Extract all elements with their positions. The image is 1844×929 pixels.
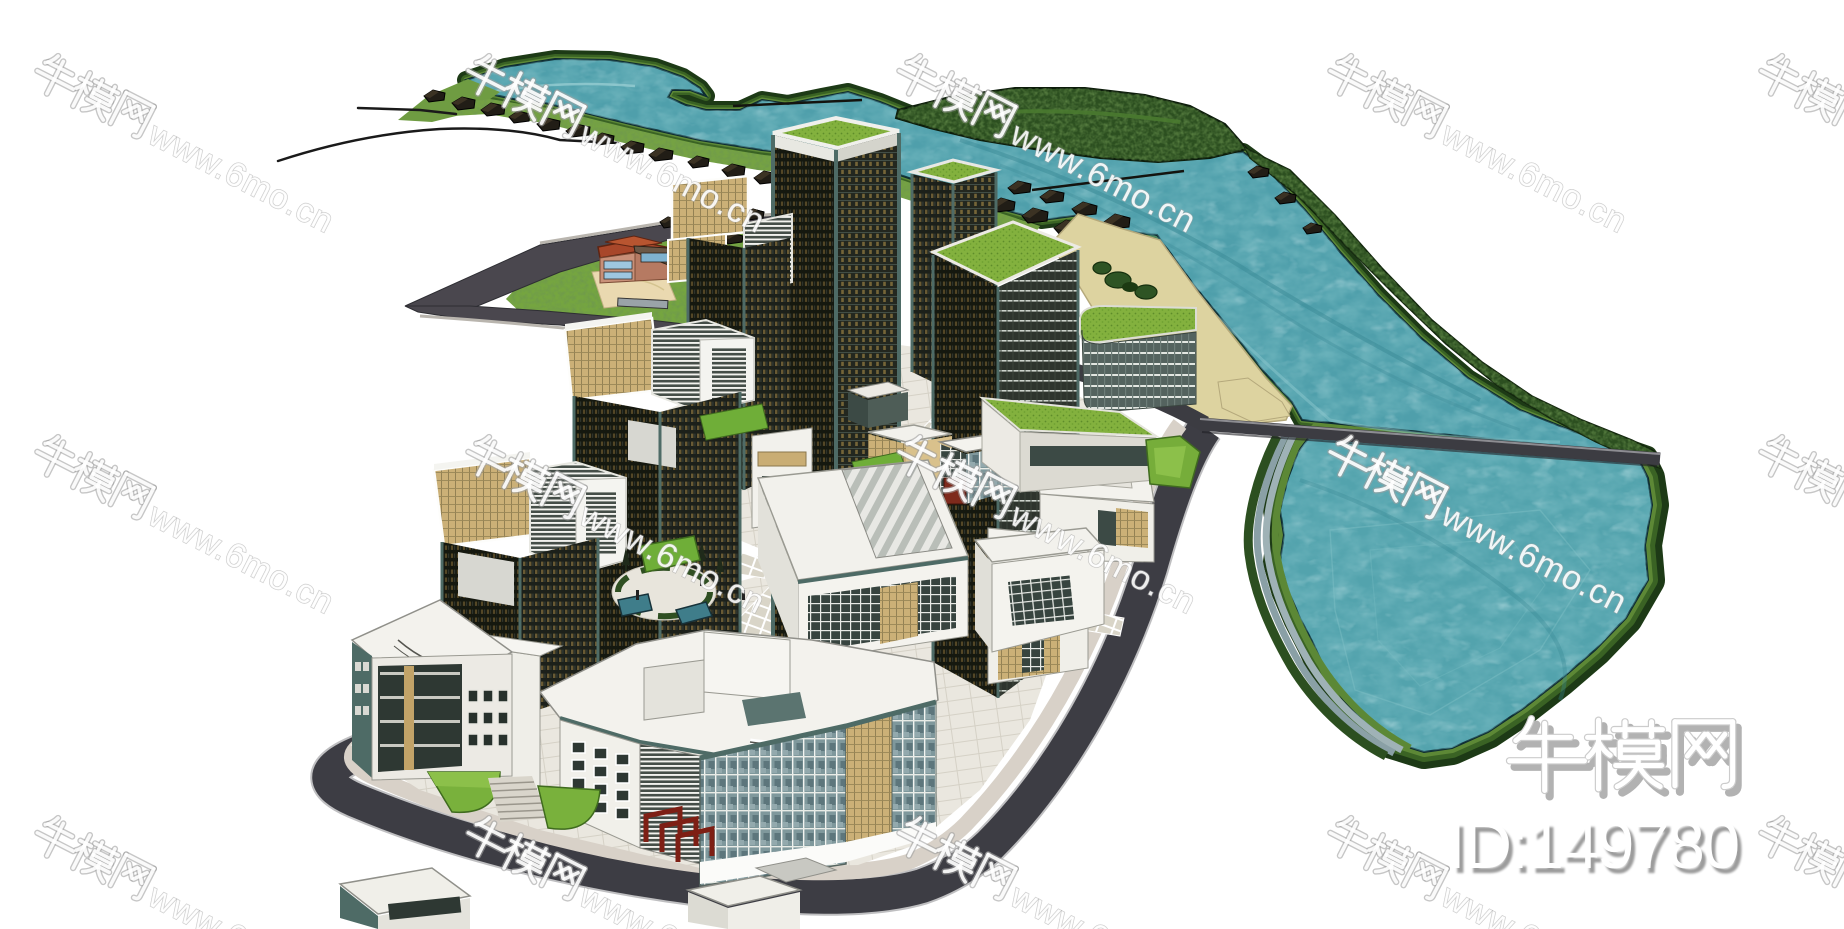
- svg-text:ID:149780: ID:149780: [1447, 808, 1738, 883]
